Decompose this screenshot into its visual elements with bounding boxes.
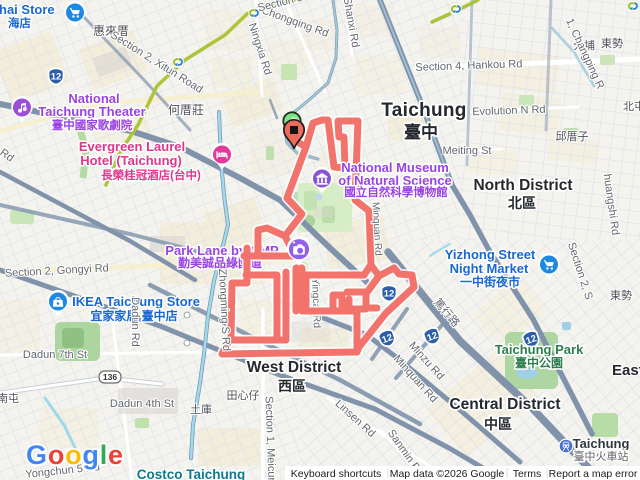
svg-text:臺中國家歌劇院: 臺中國家歌劇院: [52, 118, 133, 132]
svg-text:Yizhong Street: Yizhong Street: [445, 247, 536, 262]
svg-text:北屯: 北屯: [623, 100, 640, 113]
svg-text:Meiting St: Meiting St: [443, 145, 492, 157]
svg-text:長榮桂冠酒店(台中): 長榮桂冠酒店(台中): [101, 168, 201, 182]
svg-text:Taichung: Taichung: [573, 436, 630, 451]
svg-text:臺中: 臺中: [404, 122, 438, 142]
svg-text:何厝莊: 何厝莊: [168, 103, 204, 117]
svg-text:海店: 海店: [8, 16, 31, 30]
svg-text:East Dis: East Dis: [612, 362, 640, 379]
svg-text:Taichung Theater: Taichung Theater: [38, 104, 145, 119]
svg-text:Evolution N Rd: Evolution N Rd: [472, 104, 546, 119]
svg-text:Taichung: Taichung: [381, 100, 466, 121]
svg-text:臺中公園: 臺中公園: [515, 355, 563, 370]
svg-text:田心仔: 田心仔: [227, 389, 260, 402]
svg-text:中區: 中區: [484, 416, 512, 432]
svg-text:南屯: 南屯: [0, 392, 19, 405]
svg-text:邱厝子: 邱厝子: [556, 130, 589, 143]
svg-text:hai Store: hai Store: [0, 2, 55, 17]
svg-text:Terms: Terms: [513, 468, 542, 480]
svg-text:North District: North District: [473, 177, 572, 194]
svg-text:東勢: 東勢: [610, 288, 632, 302]
svg-text:Report a map error: Report a map error: [549, 468, 638, 480]
svg-text:Costco Taichung: Costco Taichung: [137, 467, 246, 480]
svg-text:Central District: Central District: [449, 396, 560, 413]
svg-text:Taichung Park: Taichung Park: [495, 342, 584, 357]
svg-text:136: 136: [103, 372, 117, 382]
svg-text:Evergreen Laurel: Evergreen Laurel: [79, 139, 185, 154]
svg-text:東勢: 東勢: [601, 36, 623, 50]
svg-text:臺中火車站: 臺中火車站: [574, 449, 629, 463]
svg-text:Hotel (Taichung): Hotel (Taichung): [80, 153, 182, 168]
svg-text:北區: 北區: [508, 195, 536, 211]
svg-text:Map data ©2026 Google: Map data ©2026 Google: [390, 468, 505, 480]
svg-text:of Natural Science: of Natural Science: [338, 173, 451, 188]
svg-text:West District: West District: [247, 359, 341, 376]
svg-text:土庫: 土庫: [190, 402, 212, 416]
svg-text:Dadun 4th St: Dadun 4th St: [110, 398, 174, 410]
svg-text:一中街夜市: 一中街夜市: [460, 274, 520, 289]
svg-text:西區: 西區: [278, 378, 306, 394]
svg-text:Dadun 7th St: Dadun 7th St: [23, 349, 87, 361]
svg-text:Dadun Rd: Dadun Rd: [129, 297, 141, 347]
svg-text:Night Market: Night Market: [450, 261, 529, 276]
svg-text:Google: Google: [26, 440, 124, 470]
svg-text:國立自然科學博物館: 國立自然科學博物館: [344, 185, 448, 199]
svg-text:Keyboard shortcuts: Keyboard shortcuts: [291, 468, 381, 480]
